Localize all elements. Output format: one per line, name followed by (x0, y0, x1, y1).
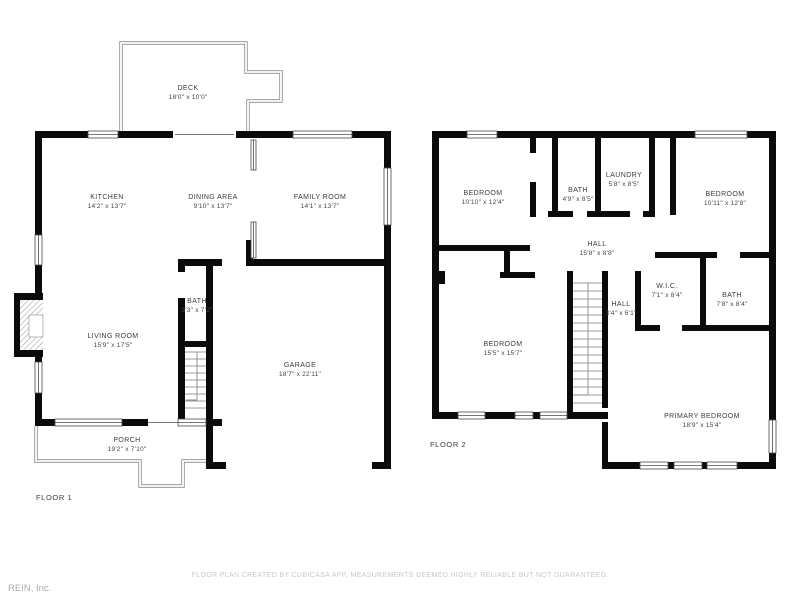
room-label-porch: PORCH 19'2" x 7'10" (108, 437, 147, 453)
room-label-laundry: LAUNDRY 5'8" x 8'5" (606, 172, 642, 188)
room-label-bedroom-3: BEDROOM 15'5" x 15'7" (484, 341, 523, 357)
brand-text: REIN, Inc. (8, 583, 51, 594)
stairs-floor1 (185, 352, 206, 408)
walls-floor1 (35, 131, 391, 469)
room-label-bedroom-2: BEDROOM 10'11" x 12'8" (704, 191, 746, 207)
floor-plan-geometry (0, 0, 800, 600)
room-label-bath-floor1: BATH 3'3" x 7'2" (181, 298, 212, 314)
room-label-primary-bedroom: PRIMARY BEDROOM 18'9" x 15'4" (664, 413, 740, 429)
room-label-garage: GARAGE 18'7" x 22'11" (279, 362, 321, 378)
floor-1-tag: FLOOR 1 (36, 493, 72, 502)
room-label-dining-area: DINING AREA 9'10" x 13'7" (188, 194, 238, 210)
room-label-deck: DECK 18'0" x 10'0" (169, 85, 208, 101)
floor-plan-canvas: DECK 18'0" x 10'0" KITCHEN 14'2" x 13'7"… (0, 0, 800, 600)
room-label-bedroom-1: BEDROOM 10'10" x 12'4" (462, 190, 505, 206)
room-label-hall-main: HALL 15'8" x 8'8" (580, 241, 615, 257)
room-label-living-room: LIVING ROOM 15'9" x 17'5" (87, 333, 138, 349)
room-label-wic: W.I.C. 7'1" x 8'4" (651, 283, 682, 299)
room-label-hall-small: HALL 3'4" x 6'1" (605, 301, 636, 317)
room-label-family-room: FAMILY ROOM 14'1" x 13'7" (294, 194, 346, 210)
porch-outline (36, 426, 212, 486)
floor-2-tag: FLOOR 2 (430, 440, 466, 449)
disclaimer-text: FLOOR PLAN CREATED BY CUBICASA APP. MEAS… (0, 572, 800, 579)
stairs-floor2 (573, 283, 602, 403)
fireplace (14, 293, 43, 357)
room-label-bath-floor2-upper: BATH 4'9" x 8'5" (562, 187, 593, 203)
room-label-kitchen: KITCHEN 14'2" x 13'7" (88, 194, 127, 210)
room-label-bath-floor2-lower: BATH 7'8" x 8'4" (716, 292, 747, 308)
